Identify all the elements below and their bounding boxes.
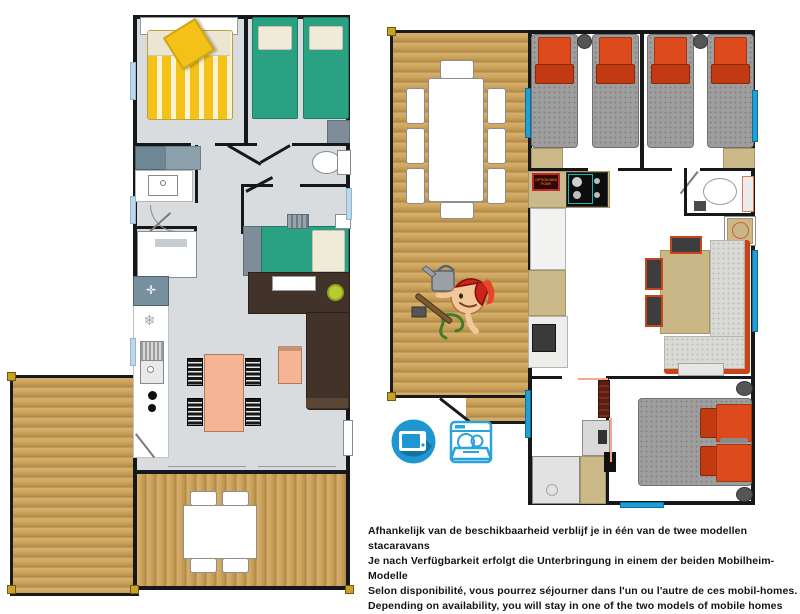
model-a-floor-plan: ✛ ❄ xyxy=(0,0,360,614)
deck-chair xyxy=(406,168,425,204)
cabinet xyxy=(135,146,167,170)
dining-chair xyxy=(645,295,663,327)
bathroom-cabinet xyxy=(580,456,606,504)
wardrobe xyxy=(723,148,755,170)
window xyxy=(620,502,664,508)
availability-caption: Afhankelijk van de beschikbaarheid verbl… xyxy=(368,524,798,614)
window xyxy=(525,88,531,138)
wall-lamp xyxy=(693,34,708,49)
caption-line-fr: Selon disponibilité, vous pourrez séjour… xyxy=(368,584,798,599)
tray xyxy=(272,276,316,291)
entry-door xyxy=(343,420,353,456)
dining-chair xyxy=(245,398,261,426)
window xyxy=(130,338,136,366)
deck-table xyxy=(428,78,484,202)
sink-drain-dot xyxy=(147,366,154,373)
toilet-tank xyxy=(337,150,351,175)
wardrobe xyxy=(531,148,563,170)
wall xyxy=(292,143,350,146)
bedside-lamp xyxy=(736,487,753,502)
deck-chair xyxy=(487,128,506,164)
deck-chair xyxy=(190,558,217,573)
gardener-mascot xyxy=(398,255,504,347)
deck-chair xyxy=(190,491,217,506)
caption-line-en: Depending on availability, you will stay… xyxy=(368,599,798,614)
amenity-icons xyxy=(390,416,500,466)
deck-post xyxy=(345,585,354,594)
floorplan-brochure: ✛ ❄ xyxy=(0,0,800,614)
dining-chair xyxy=(645,258,663,290)
pillow xyxy=(309,26,343,50)
pillow xyxy=(596,64,635,84)
dining-chair xyxy=(187,398,203,426)
deck-post xyxy=(130,585,139,594)
sink-drainer xyxy=(140,341,164,361)
bin xyxy=(694,201,706,211)
bed-headboard xyxy=(243,226,263,276)
pillow xyxy=(535,64,574,84)
deck-table xyxy=(183,505,257,559)
deck-chair xyxy=(222,491,249,506)
dining-chair xyxy=(245,358,261,386)
dining-table xyxy=(660,250,710,334)
dining-chair xyxy=(670,236,702,254)
deck-chair xyxy=(440,202,474,219)
wall-lamp xyxy=(577,34,592,49)
burner xyxy=(594,192,600,198)
pillow xyxy=(258,26,292,50)
window xyxy=(752,90,758,142)
pillow-gap xyxy=(720,438,748,443)
shower xyxy=(532,456,580,504)
pillow xyxy=(716,404,752,442)
pillow xyxy=(716,444,752,482)
mini-oven-option-plaque: OPTION MINI FOUR xyxy=(532,173,560,191)
side-deck xyxy=(10,375,139,596)
window xyxy=(130,62,136,100)
fridge-freezer: ❄ xyxy=(135,306,164,336)
toilet-bowl xyxy=(703,178,737,205)
wall xyxy=(608,376,755,379)
dining-table xyxy=(204,354,244,432)
deck-chair xyxy=(487,88,506,124)
deck-chair xyxy=(222,558,249,573)
deck-post xyxy=(7,372,16,381)
wall xyxy=(244,15,248,145)
deck-post xyxy=(7,585,16,594)
dining-chair xyxy=(187,358,203,386)
burner xyxy=(594,178,600,184)
wall xyxy=(215,143,257,146)
window xyxy=(525,390,531,438)
microwave xyxy=(532,324,556,352)
stove-burner xyxy=(148,404,156,412)
wall xyxy=(618,168,672,171)
threshold-line xyxy=(168,466,246,467)
faucet-dot xyxy=(160,180,166,186)
wall xyxy=(684,168,687,216)
faucet xyxy=(598,430,607,444)
pillow xyxy=(711,64,750,84)
bedside-lamp xyxy=(736,381,753,396)
dishwasher-icon xyxy=(448,419,494,465)
window xyxy=(752,250,758,332)
deck-post xyxy=(387,392,396,401)
sofa-brown xyxy=(306,312,350,410)
shower-drain xyxy=(546,484,558,496)
deck-post xyxy=(387,27,396,36)
shower-mat xyxy=(155,239,187,247)
kitchen-unit-vent: ✛ xyxy=(133,276,169,306)
armchair-peach xyxy=(278,346,302,384)
wall xyxy=(528,376,562,379)
wall xyxy=(700,168,755,171)
door-frame-line xyxy=(610,418,612,462)
fridge xyxy=(530,208,566,270)
ladder xyxy=(287,214,309,229)
window xyxy=(346,188,352,220)
wall xyxy=(300,184,350,187)
door-frame-line xyxy=(578,378,608,380)
pillow xyxy=(312,230,345,272)
threshold-line xyxy=(258,466,336,467)
lamp-lime xyxy=(327,284,344,301)
deck-chair xyxy=(406,88,425,124)
deck-chair xyxy=(406,128,425,164)
kitchen-cabinet xyxy=(528,270,566,316)
window xyxy=(130,196,136,224)
footstool xyxy=(678,363,724,376)
wall xyxy=(640,30,644,170)
caption-line-de: Je nach Verfügbarkeit erfolgt die Unterb… xyxy=(368,554,798,584)
burner xyxy=(572,177,582,187)
burner xyxy=(573,191,581,199)
sofa-armrest xyxy=(306,398,348,408)
corner-basin xyxy=(742,176,754,212)
wardrobe-dark xyxy=(598,380,610,418)
caption-line-nl: Afhankelijk van de beschikbaarheid verbl… xyxy=(368,524,798,554)
deck-chair xyxy=(440,60,474,79)
washbasin-bowl xyxy=(732,222,749,239)
pillow xyxy=(651,64,690,84)
deck-chair xyxy=(487,168,506,204)
stove-burner xyxy=(148,391,157,400)
tv-icon xyxy=(390,418,437,465)
cabinet xyxy=(165,146,201,170)
